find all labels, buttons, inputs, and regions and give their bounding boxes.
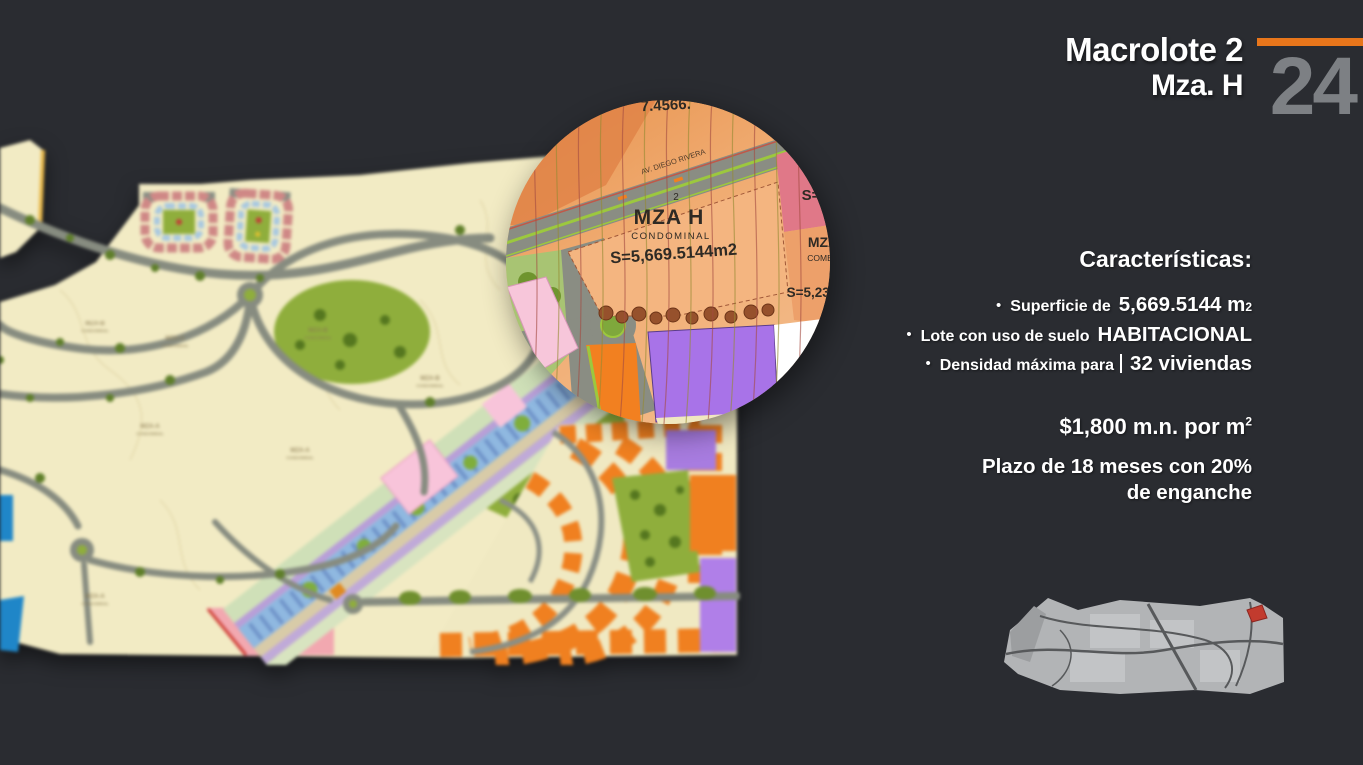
bullet-value: HABITACIONAL <box>1098 321 1253 348</box>
svg-text:MZA-B: MZA-B <box>308 328 328 334</box>
thumbnail-land <box>1004 598 1284 694</box>
bullet-densidad: • Densidad máxima para 32 viviendas <box>906 350 1252 379</box>
svg-text:CONDOMINAL: CONDOMINAL <box>81 601 109 606</box>
bullet-prefix: Superficie de <box>1010 293 1110 320</box>
svg-text:MZA-A: MZA-A <box>85 594 105 600</box>
inset-lot-type: CONDOMINAL <box>631 231 710 242</box>
text-cursor <box>1120 354 1122 373</box>
svg-text:MZA-A: MZA-A <box>290 448 310 454</box>
pricing-section: $1,800 m.n. por m2 Plazo de 18 meses con… <box>982 414 1252 506</box>
bullet-icon: • <box>925 350 930 377</box>
inset-lot-number: 2 <box>673 192 679 203</box>
bullet-prefix: Lote con uso de suelo <box>921 323 1090 350</box>
terms-line-2: de enganche <box>982 480 1252 506</box>
inset-neighbor-type: COME <box>807 253 830 263</box>
title-block: Macrolote 2 Mza. H <box>1065 32 1243 103</box>
bullet-value: 5,669.5144 m <box>1119 291 1246 318</box>
inset-neighbor-area2: S=5,235 <box>787 285 830 300</box>
svg-text:CONDOMINAL: CONDOMINAL <box>416 383 444 388</box>
inset-top-fragment: 7.4566. <box>640 100 691 115</box>
bullet-value: 32 viviendas <box>1130 350 1252 377</box>
page-number: 24 <box>1270 46 1355 128</box>
map-condo-cluster-2 <box>221 184 296 269</box>
svg-text:MZA-B: MZA-B <box>420 376 440 382</box>
locator-thumbnail-map <box>1000 590 1288 710</box>
bullet-icon: • <box>906 321 911 348</box>
bullet-uso-suelo: • Lote con uso de suelo HABITACIONAL <box>906 321 1252 350</box>
slide-title-line2: Mza. H <box>1065 69 1243 103</box>
bullet-superficie: • Superficie de 5,669.5144 m2 <box>906 291 1252 321</box>
svg-text:MZA-B: MZA-B <box>85 321 105 327</box>
map-left-wedge <box>0 140 43 258</box>
slide-title-line1: Macrolote 2 <box>1065 32 1243 69</box>
svg-text:CONDOMINAL: CONDOMINAL <box>286 455 314 460</box>
slide: MZA-B CONDOMINAL MZA-C CONDOMINAL MZA-B … <box>0 0 1363 765</box>
inset-neighbor-area: S= <box>802 187 821 204</box>
svg-text:CONDOMINAL: CONDOMINAL <box>136 431 164 436</box>
map-condo-cluster-1 <box>139 184 219 256</box>
svg-text:MZA-C: MZA-C <box>165 336 185 342</box>
inset-neighbor-name: MZA <box>808 234 830 250</box>
svg-text:CONDOMINAL: CONDOMINAL <box>81 328 109 333</box>
zoom-inset-map: 7.4566. AV. DIEGO RIVERA 2 MZA H CONDOMI… <box>506 100 830 424</box>
bullet-icon: • <box>996 292 1001 319</box>
terms-line-1: Plazo de 18 meses con 20% <box>982 454 1252 480</box>
svg-text:MZA-A: MZA-A <box>140 424 160 430</box>
characteristics-heading: Características: <box>906 246 1252 273</box>
price-line: $1,800 m.n. por m2 <box>982 414 1252 440</box>
characteristics-section: Características: • Superficie de 5,669.5… <box>906 246 1252 379</box>
price-sup: 2 <box>1245 415 1252 429</box>
inset-lot-white <box>774 318 830 400</box>
bullet-value-sup: 2 <box>1245 294 1252 321</box>
svg-text:CONDOMINAL: CONDOMINAL <box>304 335 332 340</box>
inset-lot-name: MZA H <box>634 206 705 229</box>
svg-text:CONDOMINAL: CONDOMINAL <box>161 343 189 348</box>
bullet-prefix: Densidad máxima para <box>940 352 1114 379</box>
